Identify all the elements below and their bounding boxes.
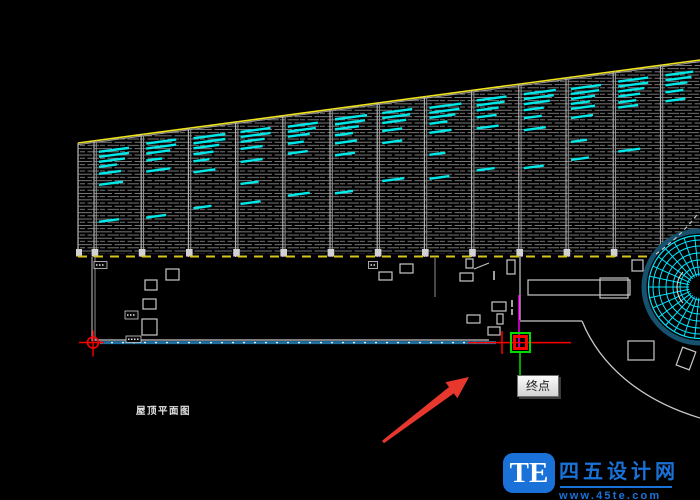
plan-line [474,263,489,269]
plan-rect [460,273,473,281]
snap-tooltip: 终点 [517,375,559,397]
dim-label-box [369,262,378,269]
plan-rect [676,347,696,370]
plan-rect [467,315,480,323]
plan-rect [143,299,156,309]
plan-rect [632,260,643,271]
watermark-text-block: 四五设计网 www.45te.com [559,453,679,500]
roof-column-base [469,249,476,257]
roof-column-base [233,249,240,257]
plan-rect [400,264,413,273]
plan-rect [497,314,503,324]
plan-rect [166,269,179,280]
roof-column-base [375,249,382,257]
roof-column-base [280,249,287,257]
plan-rect [379,272,392,280]
watermark: TE 四五设计网 www.45te.com [503,453,679,500]
roof-column-base [611,249,618,257]
annotation-arrow [382,377,469,443]
generated-drawing [76,60,700,443]
roof-column-base [139,249,146,257]
roof-column-base [76,249,82,257]
watermark-divider [560,486,672,488]
roof-column-base [92,249,99,257]
roof-column-base [516,249,523,257]
watermark-site-name: 四五设计网 [559,455,679,484]
roof-column-base [564,249,571,257]
watermark-logo: TE [503,453,555,493]
plan-rect [628,341,654,360]
plan-rect [528,280,630,295]
roof-column-base [186,249,193,257]
plan-rect [145,280,157,290]
roof-band-hatch [78,60,700,254]
plan-rect [488,327,500,335]
plan-rect [466,259,473,268]
roof-column-base [422,249,429,257]
drawing-canvas[interactable] [0,0,700,500]
roof-column-base [328,249,335,257]
cad-viewport[interactable]: 终点 屋顶平面图 TE 四五设计网 www.45te.com [0,0,700,500]
plan-rect [507,260,515,274]
plan-rect [142,319,157,335]
drawing-title-label: 屋顶平面图 [136,403,191,417]
watermark-url: www.45te.com [559,490,679,500]
plan-rect [492,302,506,311]
